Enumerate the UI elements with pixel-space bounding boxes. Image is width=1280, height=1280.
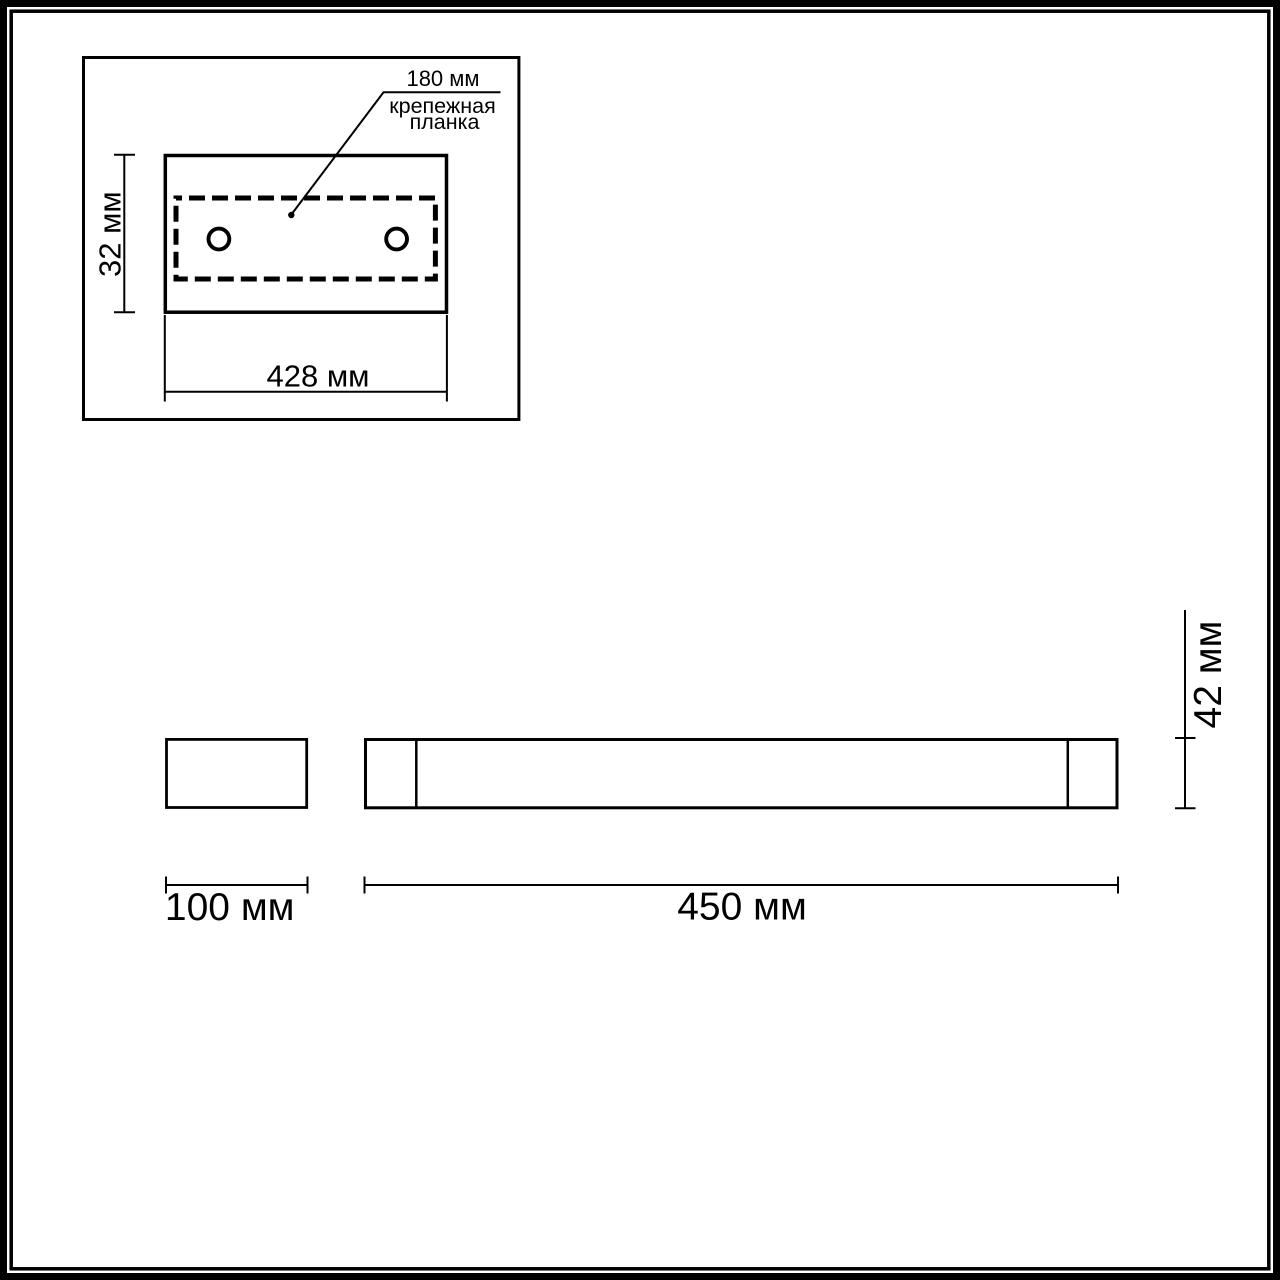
- svg-text:450 мм: 450 мм: [677, 886, 807, 929]
- svg-text:32 мм: 32 мм: [93, 191, 128, 277]
- svg-text:42 мм: 42 мм: [1187, 621, 1230, 729]
- svg-text:планка: планка: [410, 110, 480, 134]
- svg-text:100 мм: 100 мм: [165, 886, 295, 929]
- svg-text:180 мм: 180 мм: [406, 66, 479, 91]
- svg-text:428 мм: 428 мм: [267, 359, 370, 394]
